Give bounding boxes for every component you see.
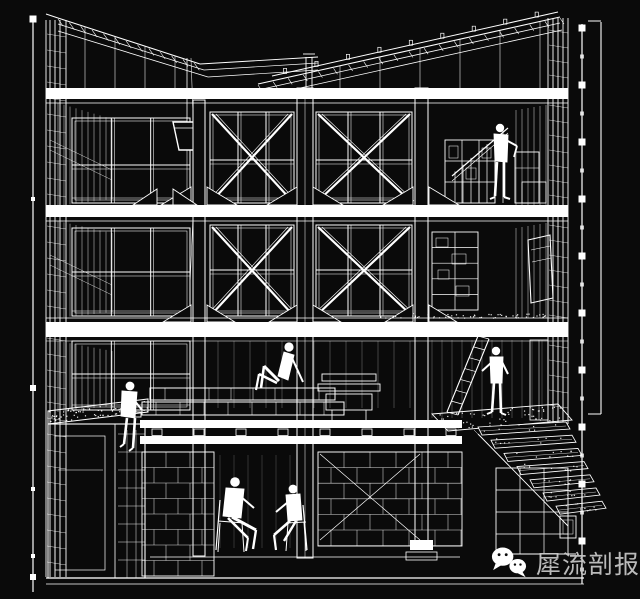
section-perspective-drawing: [0, 0, 640, 599]
screenshot-root: 犀流剖报: [0, 0, 640, 599]
